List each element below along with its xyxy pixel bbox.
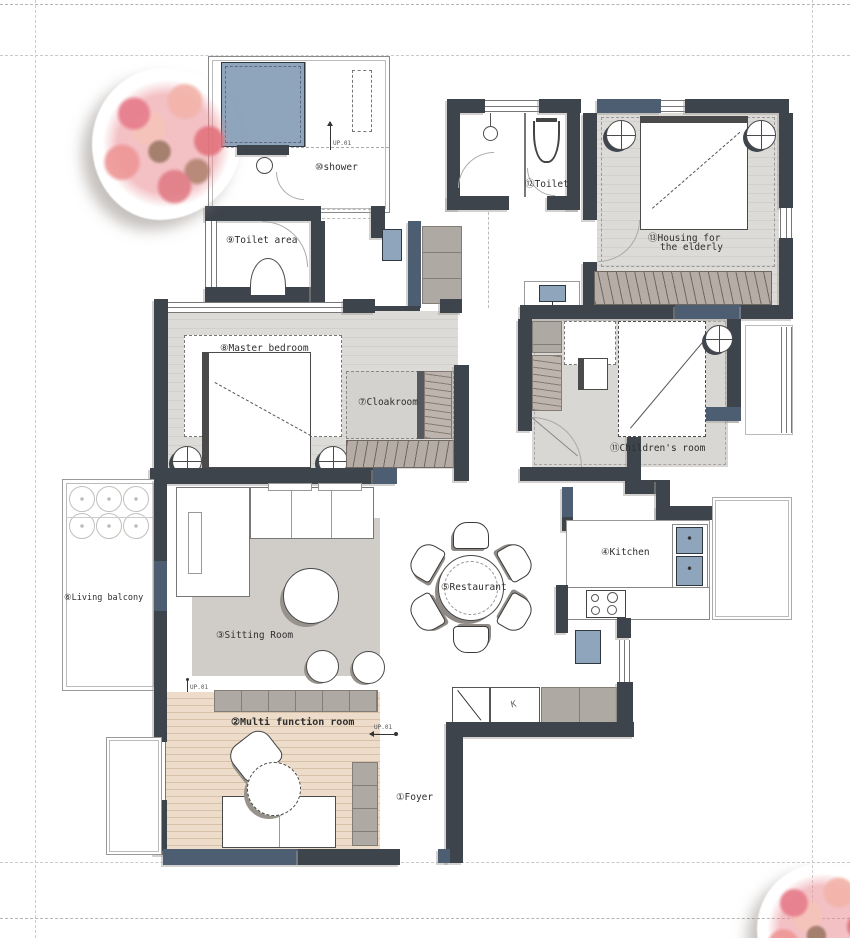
- wall: [440, 299, 462, 313]
- wardrobe: [532, 355, 562, 411]
- cabinet: [352, 762, 378, 846]
- wall: [675, 305, 741, 319]
- sofa-headrest: [268, 483, 312, 491]
- reference-line: [0, 55, 850, 56]
- toilet-tank: [536, 118, 557, 122]
- wall: [518, 319, 532, 431]
- plant-circle: [123, 486, 149, 512]
- room-label-toilet-area: ⑨Toilet area: [226, 235, 297, 246]
- wall: [447, 196, 509, 210]
- coffee-table: [283, 568, 339, 624]
- wall: [779, 238, 793, 308]
- wall: [562, 487, 573, 517]
- wall: [438, 849, 450, 863]
- level-marker: UP.01: [190, 684, 208, 691]
- cabinet: [214, 690, 378, 712]
- room-label-restaurant: ⑤Restaurant: [441, 582, 507, 593]
- tall-cabinet: [352, 70, 372, 132]
- partition-line: [305, 62, 306, 147]
- burner-icon: [591, 606, 600, 615]
- chair: [247, 762, 301, 816]
- reference-line: [0, 862, 850, 863]
- wardrobe: [594, 271, 772, 305]
- wall: [583, 113, 597, 220]
- sofa-headrest: [318, 483, 362, 491]
- burner-icon: [607, 605, 617, 615]
- opening-line: [322, 209, 371, 210]
- washbasin-icon: [382, 229, 402, 261]
- wardrobe: [346, 440, 454, 468]
- sofa: [250, 487, 374, 539]
- wall: [597, 99, 661, 113]
- reference-line: [812, 0, 813, 938]
- dining-chair: [453, 522, 489, 549]
- burner-icon: [591, 594, 599, 602]
- dining-chair: [453, 626, 489, 653]
- washbasin-icon: [539, 285, 566, 302]
- room-label-childrens-room: ⑪Children's room: [610, 440, 705, 454]
- plant-circle: [96, 486, 122, 512]
- wall: [617, 682, 633, 724]
- sofa-armrest: [188, 512, 202, 574]
- bed: [640, 116, 748, 230]
- door-arc: [458, 152, 494, 188]
- stool: [306, 650, 339, 683]
- pendant-lamp-icon: [483, 126, 498, 141]
- tree-icon: [757, 864, 850, 938]
- service-balcony-outline: [712, 497, 792, 620]
- side-balcony-outline: [106, 737, 162, 855]
- marker-dot: [394, 732, 398, 736]
- wall: [447, 99, 485, 113]
- opening-line: [322, 218, 371, 219]
- room-label-sitting-room: ③Sitting Room: [216, 630, 293, 641]
- toilet-icon: [533, 121, 560, 163]
- wall: [452, 722, 634, 737]
- plant-circle: [69, 486, 95, 512]
- reference-line: [0, 4, 850, 5]
- wall: [150, 468, 373, 484]
- ceiling-lamp-icon: [746, 120, 776, 150]
- room-label-kitchen: ④Kitchen: [601, 547, 650, 558]
- window: [485, 100, 539, 112]
- desk-edge: [578, 358, 584, 390]
- wall: [685, 99, 789, 113]
- room-label-living-balcony: ⑥Living balcony: [64, 593, 143, 603]
- wall: [343, 299, 375, 313]
- bed-headboard: [202, 352, 209, 468]
- stair-arrow: [330, 122, 331, 150]
- reference-line: [0, 918, 850, 919]
- wall: [205, 206, 321, 221]
- wall: [373, 468, 397, 484]
- wall: [446, 722, 463, 863]
- partition-line: [66, 517, 154, 518]
- arrow-head-icon: [327, 118, 333, 126]
- wall: [520, 305, 675, 319]
- bed: [618, 321, 706, 437]
- window: [619, 640, 630, 686]
- window: [781, 327, 792, 433]
- partition: [417, 371, 424, 439]
- wall: [298, 849, 400, 865]
- level-marker: UP.01: [374, 724, 392, 731]
- opening-line: [488, 212, 489, 308]
- washbasin-icon: [575, 630, 601, 664]
- hall-cabinet: [422, 226, 462, 304]
- burner-icon: [607, 592, 618, 603]
- window: [780, 208, 792, 238]
- room-label-shower: ⑩shower: [315, 162, 358, 173]
- wall: [154, 561, 167, 611]
- wall: [163, 849, 298, 865]
- wall: [539, 99, 581, 113]
- wall: [547, 196, 580, 210]
- bench: [541, 687, 617, 723]
- wall: [779, 113, 793, 208]
- wall: [311, 221, 325, 302]
- room-label-toilet: ⑫Toilet: [525, 176, 569, 190]
- wall: [656, 506, 712, 520]
- wall: [520, 467, 640, 481]
- wall: [154, 692, 167, 742]
- arrow-head-icon: [366, 731, 374, 737]
- window: [205, 221, 217, 287]
- washbasin-icon: [256, 157, 273, 174]
- cabinet: [532, 321, 562, 353]
- wall: [741, 305, 793, 319]
- sink-icon: [676, 527, 703, 554]
- room-label-master-bedroom: ⑧Master bedroom: [220, 343, 309, 354]
- room-label-foyer: ①Foyer: [396, 792, 433, 803]
- wall: [154, 611, 167, 692]
- ceiling-lamp-icon: [705, 325, 733, 353]
- floor-plan: UP.01 ⑩shower ⑨Toilet area ⑫Toilet: [0, 0, 850, 938]
- stool: [352, 651, 385, 684]
- wall: [617, 618, 631, 638]
- wall: [408, 221, 421, 308]
- bed-headboard: [640, 116, 748, 123]
- window: [661, 100, 685, 112]
- vanity-counter: [237, 145, 289, 155]
- wall: [154, 299, 168, 471]
- window: [168, 302, 343, 313]
- wall: [454, 365, 469, 481]
- room-label-multi-function: ②Multi function room: [231, 717, 354, 728]
- wardrobe: [424, 371, 452, 439]
- room-label-cloakroom: ⑦Cloakroom: [358, 397, 418, 408]
- wall: [154, 479, 167, 561]
- lamp-stem: [490, 113, 491, 127]
- ceiling-lamp-icon: [606, 120, 636, 150]
- room-label-elderly-2: the elderly: [660, 242, 723, 253]
- reference-line: [35, 0, 36, 938]
- bed: [207, 352, 311, 468]
- level-marker: UP.01: [333, 140, 351, 147]
- wall: [556, 585, 568, 633]
- sink-icon: [676, 556, 703, 586]
